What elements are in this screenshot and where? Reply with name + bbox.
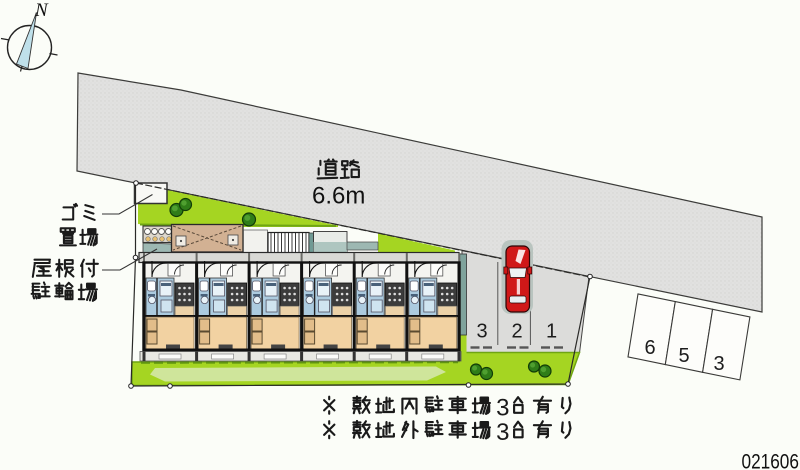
svg-text:3: 3	[496, 419, 509, 446]
svg-text:6: 6	[644, 337, 655, 359]
svg-text:6.6m: 6.6m	[312, 183, 365, 210]
svg-text:3: 3	[496, 395, 509, 422]
svg-text:N: N	[34, 0, 49, 21]
svg-text:1: 1	[546, 321, 557, 343]
svg-text:2: 2	[511, 321, 522, 343]
svg-text:021606: 021606	[742, 451, 799, 470]
svg-text:5: 5	[678, 345, 689, 367]
svg-text:3: 3	[713, 353, 724, 375]
svg-text:3: 3	[476, 321, 487, 343]
